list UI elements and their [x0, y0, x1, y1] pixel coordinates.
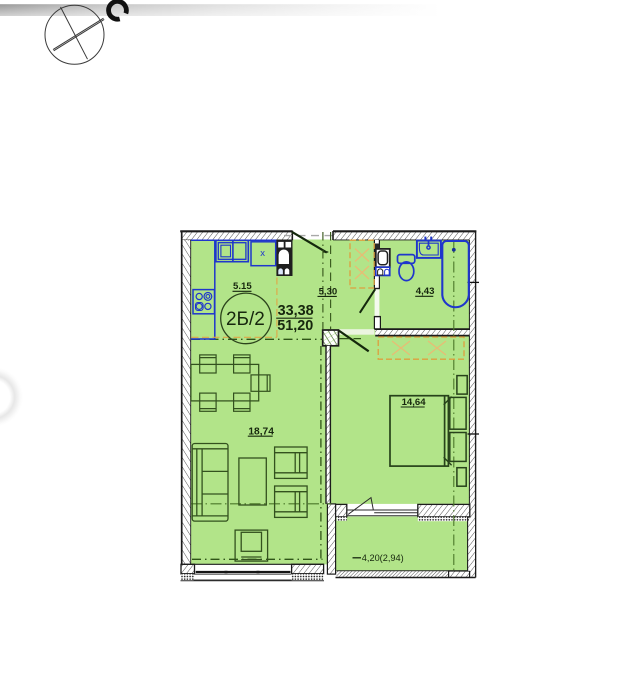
svg-text:2Б/2: 2Б/2: [226, 309, 265, 330]
svg-text:33,38: 33,38: [278, 303, 314, 319]
svg-text:x: x: [260, 248, 265, 259]
svg-text:4,43: 4,43: [416, 286, 435, 297]
svg-text:51,20: 51,20: [277, 318, 313, 334]
svg-text:4,20(2,94): 4,20(2,94): [362, 553, 404, 563]
svg-text:5.15: 5.15: [233, 281, 252, 292]
